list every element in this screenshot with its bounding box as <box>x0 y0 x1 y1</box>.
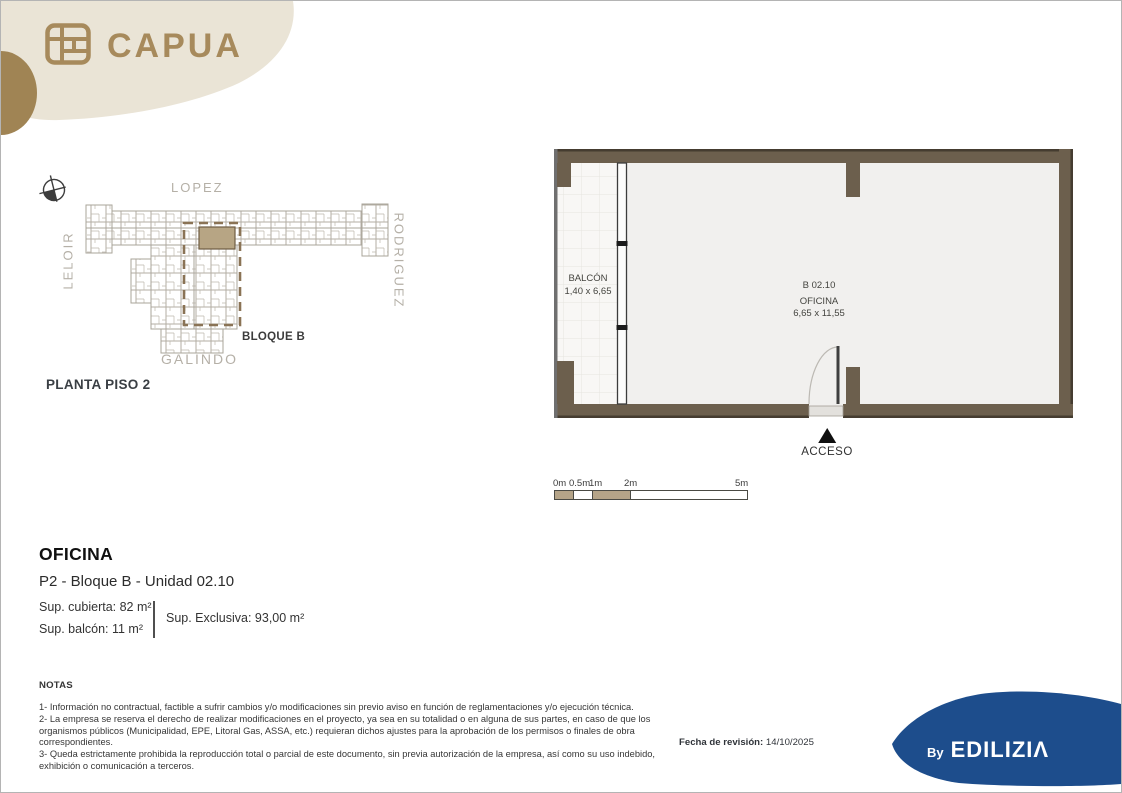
north-compass-icon <box>36 173 69 206</box>
scale-tick: 2m <box>624 478 637 489</box>
unit-type-title: OFICINA <box>39 544 113 565</box>
note-item: 3- Queda estrictamente prohibida la repr… <box>39 749 667 773</box>
bloque-b-label: BLOQUE B <box>242 331 305 343</box>
developer-lockup: By EDILIZIΛ <box>927 737 1049 763</box>
street-galindo: GALINDO <box>161 351 238 367</box>
balcony-label: BALCÓN 1,40 x 6,65 <box>564 273 611 298</box>
access-label: ACCESO <box>801 446 853 458</box>
surface-exclusive: Sup. Exclusiva: 93,00 m² <box>166 611 304 625</box>
scale-tick: 5m <box>735 478 748 489</box>
revision-date: Fecha de revisión: 14/10/2025 <box>679 737 814 748</box>
surface-divider <box>153 601 155 638</box>
floor-level-title: PLANTA PISO 2 <box>46 377 150 392</box>
developer-badge: By EDILIZIΛ <box>889 689 1121 789</box>
street-rodriguez: RODRIGUEZ <box>392 213 407 309</box>
unit-identifier: P2 - Bloque B - Unidad 02.10 <box>39 573 234 590</box>
brand-header: CAPUA <box>45 23 243 70</box>
site-footprint-drawing <box>31 171 416 406</box>
scale-bar-rule <box>554 490 748 500</box>
room-label: B 02.10 OFICINA 6,65 x 11,55 <box>793 280 845 321</box>
developer-name: EDILIZIΛ <box>951 737 1049 763</box>
scale-tick: 1m <box>589 478 602 489</box>
note-item: 2- La empresa se reserva el derecho de r… <box>39 714 667 749</box>
access-arrow-icon <box>818 428 836 443</box>
door-leaf <box>837 346 840 404</box>
surface-list: Sup. cubierta: 82 m² Sup. balcón: 11 m² <box>39 600 152 644</box>
street-lopez: LOPEZ <box>171 180 224 195</box>
notes-section: NOTAS 1- Información no contractual, fac… <box>39 680 667 773</box>
window-wall <box>618 163 627 404</box>
balcony-railing <box>554 149 558 418</box>
unit-floor-plan: BALCÓN 1,40 x 6,65 B 02.10 OFICINA 6,65 … <box>546 141 1086 471</box>
revision-date-value: 14/10/2025 <box>766 737 814 748</box>
access-indicator: ACCESO <box>801 428 853 458</box>
notes-title: NOTAS <box>39 680 667 691</box>
scale-tick: 0m <box>553 478 566 489</box>
site-location-map: LOPEZ LELOIR RODRIGUEZ GALINDO BLOQUE B … <box>31 171 416 406</box>
plan-sheet: CAPUA <box>0 0 1122 793</box>
by-label: By <box>927 745 944 760</box>
revision-date-label: Fecha de revisión: <box>679 737 763 748</box>
street-leloir: LELOIR <box>61 231 76 289</box>
scale-bar: 0m 0.5m 1m 2m 5m <box>554 478 754 502</box>
highlighted-unit <box>199 227 235 249</box>
surface-covered: Sup. cubierta: 82 m² <box>39 600 152 614</box>
note-item: 1- Información no contractual, factible … <box>39 702 667 714</box>
scale-tick: 0.5m <box>569 478 590 489</box>
capua-logo-icon <box>45 23 91 70</box>
brand-name: CAPUA <box>107 27 243 66</box>
surface-balcony: Sup. balcón: 11 m² <box>39 622 152 636</box>
door-threshold <box>809 406 843 416</box>
